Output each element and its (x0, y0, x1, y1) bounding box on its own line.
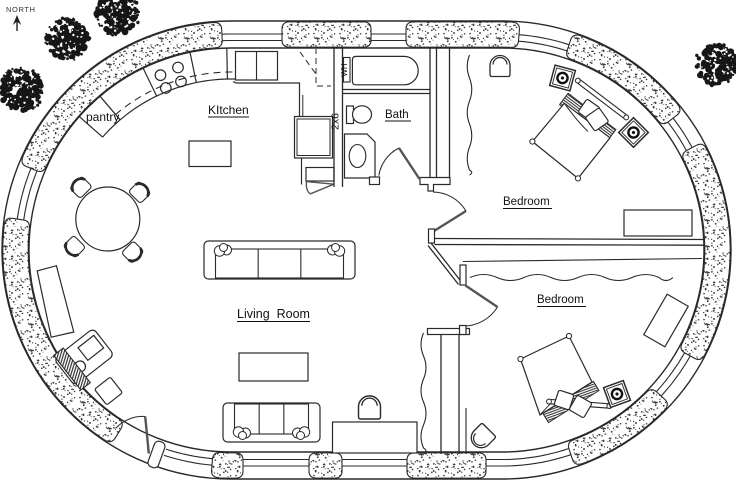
svg-text:2x6: 2x6 (330, 113, 342, 130)
svg-text:pantry: pantry (86, 110, 119, 124)
svg-text:Bath: Bath (385, 109, 409, 121)
svg-text:KItchen: KItchen (208, 103, 249, 117)
svg-text:NORTH: NORTH (6, 5, 36, 14)
svg-text:Bedroom: Bedroom (503, 196, 550, 208)
svg-text:WH: WH (340, 63, 349, 77)
svg-text:Living Room: Living Room (237, 307, 310, 321)
svg-text:Bedroom: Bedroom (537, 294, 584, 306)
